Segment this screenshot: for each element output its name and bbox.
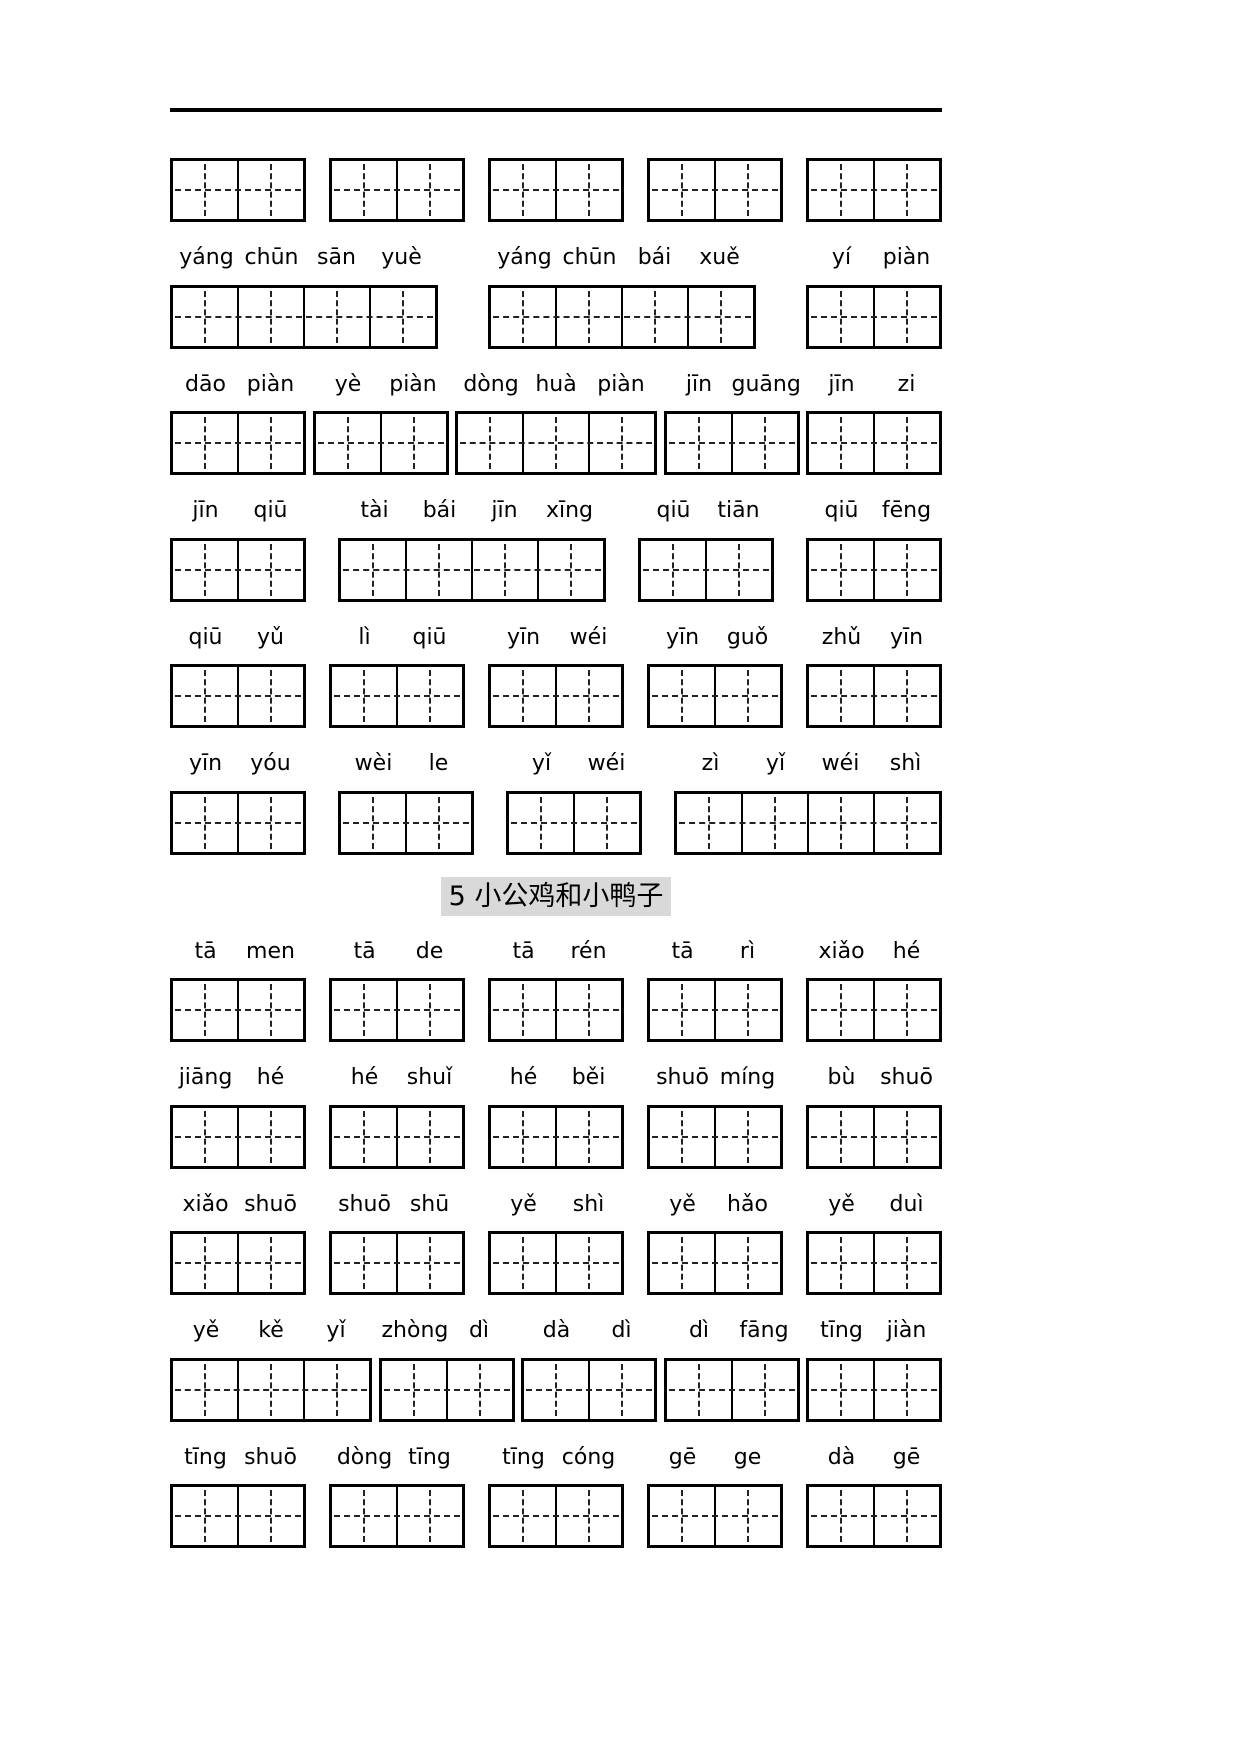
pinyin-syllable: yīn bbox=[650, 624, 715, 652]
grid-cell bbox=[809, 414, 873, 472]
pinyin-syllable: jīn bbox=[809, 371, 874, 399]
pinyin-syllable: xuě bbox=[687, 244, 752, 272]
grid-cell bbox=[809, 981, 873, 1039]
word-unit: shuōshū bbox=[329, 1191, 465, 1296]
pinyin-syllable: tīng bbox=[397, 1444, 462, 1472]
grid-cell bbox=[873, 794, 939, 852]
grid-group bbox=[170, 1231, 306, 1295]
word-unit: gēge bbox=[647, 1444, 783, 1549]
grid-cell bbox=[173, 414, 237, 472]
pinyin-syllable: zhòng bbox=[382, 1317, 447, 1345]
word-unit: dòngtīng bbox=[329, 1444, 465, 1549]
pinyin-syllable: jiàn bbox=[874, 1317, 939, 1345]
word-unit: zhǔyīn bbox=[806, 624, 942, 729]
grid-cell bbox=[555, 667, 621, 725]
pinyin-word: tāde bbox=[332, 938, 462, 966]
grid-cell bbox=[809, 161, 873, 219]
grid-cell bbox=[809, 667, 873, 725]
pinyin-syllable: tīng bbox=[491, 1444, 556, 1472]
sections-before-title: yángchūnsānyuèyángchūnbáixuěyípiàndāopià… bbox=[170, 244, 942, 855]
pinyin-syllable: zì bbox=[678, 750, 743, 778]
grid-cell bbox=[173, 161, 237, 219]
pinyin-syllable: shuō bbox=[238, 1444, 303, 1472]
grid-cell bbox=[873, 541, 939, 599]
pinyin-syllable: wéi bbox=[556, 624, 621, 652]
grid-group bbox=[488, 1105, 624, 1169]
pinyin-syllable: cóng bbox=[556, 1444, 621, 1472]
pinyin-syllable: shuō bbox=[238, 1191, 303, 1219]
grid-cell bbox=[873, 288, 939, 346]
grid-cell bbox=[446, 1361, 512, 1419]
pinyin-word: jīnzi bbox=[809, 371, 939, 399]
grid-group bbox=[329, 1231, 465, 1295]
grid-cell bbox=[173, 981, 237, 1039]
grid-cell bbox=[522, 414, 588, 472]
pinyin-syllable: jīn bbox=[667, 371, 732, 399]
pinyin-syllable: rì bbox=[715, 938, 780, 966]
pinyin-syllable: hǎo bbox=[715, 1191, 780, 1219]
grid-cell bbox=[341, 794, 405, 852]
word-unit: yángchūnsānyuè bbox=[170, 244, 438, 349]
word-unit: tārén bbox=[488, 938, 624, 1043]
pinyin-syllable: tā bbox=[332, 938, 397, 966]
pinyin-syllable: dì bbox=[447, 1317, 512, 1345]
word-unit: yīnwéi bbox=[488, 624, 624, 729]
pinyin-word: bùshuō bbox=[809, 1064, 939, 1092]
grid-cell bbox=[237, 414, 303, 472]
pinyin-word: qiūyǔ bbox=[173, 624, 303, 652]
grid-group bbox=[488, 158, 624, 222]
grid-cell bbox=[731, 414, 797, 472]
pinyin-syllable: qiū bbox=[641, 497, 706, 525]
pinyin-syllable: piàn bbox=[381, 371, 446, 399]
grid-group bbox=[806, 158, 942, 222]
word-unit: wèile bbox=[338, 750, 474, 855]
grid-group bbox=[338, 791, 474, 855]
word-unit: dònghuàpiàn bbox=[455, 371, 657, 476]
word-unit: yěshì bbox=[488, 1191, 624, 1296]
grid-group bbox=[647, 1231, 783, 1295]
grid-cell bbox=[173, 1361, 237, 1419]
pinyin-syllable: tīng bbox=[809, 1317, 874, 1345]
grid-cell bbox=[369, 288, 435, 346]
grid-cell bbox=[873, 667, 939, 725]
pinyin-word: lìqiū bbox=[332, 624, 462, 652]
grid-cell bbox=[809, 1361, 873, 1419]
grid-cell bbox=[731, 1361, 797, 1419]
word-unit: yīnguǒ bbox=[647, 624, 783, 729]
word-unit: shuōmíng bbox=[647, 1064, 783, 1169]
grid-cell bbox=[237, 981, 303, 1039]
grid-group bbox=[488, 285, 756, 349]
grid-cell bbox=[807, 794, 873, 852]
worksheet-content: yángchūnsānyuèyángchūnbáixuěyípiàndāopià… bbox=[170, 0, 942, 1548]
pinyin-syllable: piàn bbox=[589, 371, 654, 399]
grid-group bbox=[313, 411, 449, 475]
grid-group bbox=[647, 158, 783, 222]
pinyin-word: dàgē bbox=[809, 1444, 939, 1472]
pinyin-syllable: tài bbox=[342, 497, 407, 525]
word-unit: dàdì bbox=[521, 1317, 657, 1422]
grid-cell bbox=[237, 667, 303, 725]
pinyin-word: xiǎohé bbox=[809, 938, 939, 966]
grid-cell bbox=[641, 541, 705, 599]
grid-cell bbox=[491, 1234, 555, 1292]
word-unit: dìfāng bbox=[664, 1317, 800, 1422]
grid-group bbox=[638, 538, 774, 602]
pinyin-syllable: xiǎo bbox=[173, 1191, 238, 1219]
grid-cell bbox=[873, 1108, 939, 1166]
grid-cell bbox=[621, 288, 687, 346]
pinyin-syllable: hé bbox=[238, 1064, 303, 1092]
grid-group bbox=[488, 1231, 624, 1295]
pinyin-word: zìyǐwéishì bbox=[678, 750, 938, 778]
grid-cell bbox=[555, 981, 621, 1039]
grid-cell bbox=[173, 1234, 237, 1292]
pinyin-syllable: tīng bbox=[173, 1444, 238, 1472]
pinyin-word: yěduì bbox=[809, 1191, 939, 1219]
pinyin-syllable: dòng bbox=[459, 371, 524, 399]
word-unit: jīnguāng bbox=[664, 371, 800, 476]
worksheet-section: qiūyǔlìqiūyīnwéiyīnguǒzhǔyīn bbox=[170, 624, 942, 729]
grid-cell bbox=[491, 667, 555, 725]
worksheet-section: tīngshuōdòngtīngtīngcónggēgedàgē bbox=[170, 1444, 942, 1549]
pinyin-word: tārì bbox=[650, 938, 780, 966]
word-unit: yěkěyǐ bbox=[170, 1317, 372, 1422]
pinyin-syllable: yě bbox=[491, 1191, 556, 1219]
grid-group bbox=[664, 1358, 800, 1422]
grid-group bbox=[647, 664, 783, 728]
pinyin-syllable: bái bbox=[407, 497, 472, 525]
grid-cell bbox=[332, 667, 396, 725]
worksheet-section: yīnyóuwèileyǐwéizìyǐwéishì bbox=[170, 750, 942, 855]
pinyin-syllable: yǐ bbox=[509, 750, 574, 778]
grid-group bbox=[170, 1105, 306, 1169]
grid-group bbox=[806, 978, 942, 1042]
pinyin-syllable: dà bbox=[809, 1444, 874, 1472]
pinyin-word: tāmen bbox=[173, 938, 303, 966]
pinyin-syllable: yě bbox=[174, 1317, 239, 1345]
grid-cell bbox=[714, 161, 780, 219]
pinyin-syllable: dòng bbox=[332, 1444, 397, 1472]
grid-group bbox=[170, 1484, 306, 1548]
grid-cell bbox=[650, 981, 714, 1039]
pinyin-word: yīnguǒ bbox=[650, 624, 780, 652]
grid-group bbox=[329, 978, 465, 1042]
grid-group bbox=[488, 978, 624, 1042]
pinyin-syllable: qiū bbox=[397, 624, 462, 652]
grid-cell bbox=[714, 1108, 780, 1166]
word-unit: yípiàn bbox=[806, 244, 942, 349]
pinyin-word: qiūfēng bbox=[809, 497, 939, 525]
grid-cell bbox=[491, 1108, 555, 1166]
pinyin-word: tàibáijīnxīng bbox=[342, 497, 602, 525]
grid-cell bbox=[650, 1234, 714, 1292]
grid-cell bbox=[537, 541, 603, 599]
pinyin-syllable: qiū bbox=[173, 624, 238, 652]
pinyin-syllable: fēng bbox=[874, 497, 939, 525]
grid-cell bbox=[650, 667, 714, 725]
grid-cell bbox=[573, 794, 639, 852]
grid-cell bbox=[650, 1487, 714, 1545]
pinyin-word: dìfāng bbox=[667, 1317, 797, 1345]
grid-cell bbox=[705, 541, 771, 599]
grid-cell bbox=[873, 1361, 939, 1419]
pinyin-syllable: shuō bbox=[874, 1064, 939, 1092]
grid-cell bbox=[471, 541, 537, 599]
grid-cell bbox=[809, 1108, 873, 1166]
grid-cell bbox=[237, 1108, 303, 1166]
pinyin-syllable: wèi bbox=[341, 750, 406, 778]
pinyin-syllable: yè bbox=[316, 371, 381, 399]
word-unit: tāmen bbox=[170, 938, 306, 1043]
grid-cell bbox=[303, 288, 369, 346]
grid-cell bbox=[396, 1108, 462, 1166]
grid-group bbox=[806, 1358, 942, 1422]
grid-cell bbox=[491, 161, 555, 219]
pinyin-word: héběi bbox=[491, 1064, 621, 1092]
grid-cell bbox=[714, 1487, 780, 1545]
grid-cell bbox=[237, 794, 303, 852]
pinyin-word: yīnwéi bbox=[491, 624, 621, 652]
word-unit: dāopiàn bbox=[170, 371, 306, 476]
grid-group bbox=[329, 1105, 465, 1169]
word-unit: yěhǎo bbox=[647, 1191, 783, 1296]
grid-group bbox=[170, 978, 306, 1042]
pinyin-word: tīngshuō bbox=[173, 1444, 303, 1472]
word-unit: bùshuō bbox=[806, 1064, 942, 1169]
pinyin-syllable: dì bbox=[589, 1317, 654, 1345]
grid-cell bbox=[555, 1234, 621, 1292]
word-unit: jīnzi bbox=[806, 371, 942, 476]
pinyin-syllable: hé bbox=[874, 938, 939, 966]
pinyin-syllable: duì bbox=[874, 1191, 939, 1219]
pinyin-syllable: míng bbox=[715, 1064, 780, 1092]
word-unit: dàgē bbox=[806, 1444, 942, 1549]
grid-group bbox=[488, 664, 624, 728]
worksheet-section: dāopiànyèpiàndònghuàpiànjīnguāngjīnzi bbox=[170, 371, 942, 476]
word-unit: héshuǐ bbox=[329, 1064, 465, 1169]
word-unit: yīnyóu bbox=[170, 750, 306, 855]
grid-cell bbox=[173, 1108, 237, 1166]
grid-cell bbox=[741, 794, 807, 852]
grid-cell bbox=[405, 541, 471, 599]
pinyin-word: qiūtiān bbox=[641, 497, 771, 525]
grid-group bbox=[647, 1105, 783, 1169]
pinyin-syllable: qiū bbox=[809, 497, 874, 525]
grid-cell bbox=[332, 161, 396, 219]
word-unit: tāde bbox=[329, 938, 465, 1043]
grid-cell bbox=[555, 161, 621, 219]
grid-cell bbox=[714, 667, 780, 725]
pinyin-syllable: tā bbox=[173, 938, 238, 966]
word-unit: tīngshuō bbox=[170, 1444, 306, 1549]
pinyin-word: xiǎoshuō bbox=[173, 1191, 303, 1219]
grid-cell bbox=[873, 414, 939, 472]
word-unit: zìyǐwéishì bbox=[674, 750, 942, 855]
grid-cell bbox=[667, 414, 731, 472]
grid-group bbox=[647, 978, 783, 1042]
pinyin-syllable: kě bbox=[239, 1317, 304, 1345]
grid-group bbox=[170, 791, 306, 855]
word-unit: qiūtiān bbox=[638, 497, 774, 602]
grid-cell bbox=[341, 541, 405, 599]
pinyin-syllable: yǔ bbox=[238, 624, 303, 652]
word-unit: jiānghé bbox=[170, 1064, 306, 1169]
pinyin-syllable: zhǔ bbox=[809, 624, 874, 652]
lesson-title-row: 5 小公鸡和小鸭子 bbox=[170, 877, 942, 916]
grid-cell bbox=[491, 288, 555, 346]
pinyin-syllable: shì bbox=[556, 1191, 621, 1219]
pinyin-syllable: běi bbox=[556, 1064, 621, 1092]
worksheet-section: xiǎoshuōshuōshūyěshìyěhǎoyěduì bbox=[170, 1191, 942, 1296]
pinyin-syllable: chūn bbox=[557, 244, 622, 272]
grid-cell bbox=[687, 288, 753, 346]
pinyin-syllable: yǐ bbox=[743, 750, 808, 778]
grid-group bbox=[806, 1105, 942, 1169]
grid-cell bbox=[332, 1487, 396, 1545]
word-unit: tārì bbox=[647, 938, 783, 1043]
pinyin-syllable: yě bbox=[809, 1191, 874, 1219]
grid-cell bbox=[458, 414, 522, 472]
worksheet-section: yángchūnsānyuèyángchūnbáixuěyípiàn bbox=[170, 244, 942, 349]
grid-group bbox=[329, 158, 465, 222]
worksheet-section: jīnqiūtàibáijīnxīngqiūtiānqiūfēng bbox=[170, 497, 942, 602]
pinyin-word: wèile bbox=[341, 750, 471, 778]
pinyin-syllable: guǒ bbox=[715, 624, 780, 652]
pinyin-word: jīnguāng bbox=[667, 371, 797, 399]
grid-cell bbox=[173, 667, 237, 725]
pinyin-syllable: huà bbox=[524, 371, 589, 399]
grid-cell bbox=[173, 794, 237, 852]
pinyin-syllable: yīn bbox=[491, 624, 556, 652]
pinyin-syllable: rén bbox=[556, 938, 621, 966]
word-unit: qiūyǔ bbox=[170, 624, 306, 729]
grid-cell bbox=[873, 981, 939, 1039]
pinyin-syllable: le bbox=[406, 750, 471, 778]
grid-cell bbox=[555, 1487, 621, 1545]
grid-cell bbox=[677, 794, 741, 852]
word-unit: héběi bbox=[488, 1064, 624, 1169]
grid-group bbox=[170, 158, 306, 222]
worksheet-section: yěkěyǐzhòngdìdàdìdìfāngtīngjiàn bbox=[170, 1317, 942, 1422]
top-rule-divider bbox=[170, 108, 942, 112]
grid-cell bbox=[237, 541, 303, 599]
grid-cell bbox=[555, 288, 621, 346]
grid-group bbox=[338, 538, 606, 602]
pinyin-syllable: gē bbox=[650, 1444, 715, 1472]
pinyin-syllable: dāo bbox=[173, 371, 238, 399]
grid-group bbox=[674, 791, 942, 855]
pinyin-word: yěshì bbox=[491, 1191, 621, 1219]
grid-group bbox=[379, 1358, 515, 1422]
grid-cell bbox=[316, 414, 380, 472]
pinyin-word: héshuǐ bbox=[332, 1064, 462, 1092]
word-unit: tàibáijīnxīng bbox=[338, 497, 606, 602]
pinyin-word: yěkěyǐ bbox=[174, 1317, 369, 1345]
grid-group bbox=[806, 538, 942, 602]
pinyin-word: yèpiàn bbox=[316, 371, 446, 399]
pinyin-syllable: shuǐ bbox=[397, 1064, 462, 1092]
pinyin-syllable: wéi bbox=[574, 750, 639, 778]
grid-cell bbox=[173, 1487, 237, 1545]
pinyin-syllable: yóu bbox=[238, 750, 303, 778]
grid-cell bbox=[650, 161, 714, 219]
pinyin-word: zhòngdì bbox=[382, 1317, 512, 1345]
pinyin-syllable: hé bbox=[491, 1064, 556, 1092]
pinyin-word: yípiàn bbox=[809, 244, 939, 272]
worksheet-section: jiānghéhéshuǐhéběishuōmíngbùshuō bbox=[170, 1064, 942, 1169]
grid-group bbox=[647, 1484, 783, 1548]
grid-cell bbox=[873, 161, 939, 219]
pinyin-syllable: lì bbox=[332, 624, 397, 652]
sections-after-title: tāmentādetāréntārìxiǎohéjiānghéhéshuǐhéb… bbox=[170, 938, 942, 1549]
pinyin-syllable: shuō bbox=[332, 1191, 397, 1219]
grid-cell bbox=[332, 981, 396, 1039]
grid-cell bbox=[396, 161, 462, 219]
word-unit: zhòngdì bbox=[379, 1317, 515, 1422]
pinyin-syllable: shì bbox=[873, 750, 938, 778]
pinyin-syllable: guāng bbox=[732, 371, 797, 399]
grid-cell bbox=[588, 414, 654, 472]
grid-cell bbox=[396, 1234, 462, 1292]
word-unit: xiǎoshuō bbox=[170, 1191, 306, 1296]
orphan-grid-row bbox=[170, 158, 942, 222]
grid-group bbox=[806, 285, 942, 349]
pinyin-syllable: men bbox=[238, 938, 303, 966]
grid-cell bbox=[509, 794, 573, 852]
pinyin-syllable: wéi bbox=[808, 750, 873, 778]
worksheet-page: yángchūnsānyuèyángchūnbáixuěyípiàndāopià… bbox=[0, 0, 1240, 1754]
grid-cell bbox=[237, 161, 303, 219]
grid-cell bbox=[588, 1361, 654, 1419]
pinyin-syllable: jīn bbox=[472, 497, 537, 525]
pinyin-syllable: piàn bbox=[874, 244, 939, 272]
grid-cell bbox=[650, 1108, 714, 1166]
pinyin-syllable: sān bbox=[304, 244, 369, 272]
grid-group bbox=[170, 285, 438, 349]
pinyin-word: shuōshū bbox=[332, 1191, 462, 1219]
pinyin-syllable: tiān bbox=[706, 497, 771, 525]
pinyin-word: gēge bbox=[650, 1444, 780, 1472]
pinyin-syllable: yīn bbox=[173, 750, 238, 778]
grid-group bbox=[170, 538, 306, 602]
grid-group bbox=[329, 664, 465, 728]
grid-cell bbox=[396, 981, 462, 1039]
pinyin-word: dònghuàpiàn bbox=[459, 371, 654, 399]
pinyin-syllable: jiāng bbox=[173, 1064, 238, 1092]
grid-cell bbox=[237, 1487, 303, 1545]
grid-cell bbox=[303, 1361, 369, 1419]
pinyin-syllable: dì bbox=[667, 1317, 732, 1345]
lesson-title: 5 小公鸡和小鸭子 bbox=[441, 877, 672, 916]
grid-cell bbox=[809, 1487, 873, 1545]
pinyin-syllable: ge bbox=[715, 1444, 780, 1472]
pinyin-syllable: xiǎo bbox=[809, 938, 874, 966]
pinyin-syllable: shū bbox=[397, 1191, 462, 1219]
grid-group bbox=[455, 411, 657, 475]
pinyin-syllable: yě bbox=[650, 1191, 715, 1219]
word-unit: qiūfēng bbox=[806, 497, 942, 602]
grid-cell bbox=[714, 1234, 780, 1292]
grid-group bbox=[170, 411, 306, 475]
pinyin-word: tīngjiàn bbox=[809, 1317, 939, 1345]
pinyin-word: yīnyóu bbox=[173, 750, 303, 778]
pinyin-syllable: shuō bbox=[650, 1064, 715, 1092]
pinyin-syllable: tā bbox=[650, 938, 715, 966]
worksheet-section: tāmentādetāréntārìxiǎohé bbox=[170, 938, 942, 1043]
grid-cell bbox=[237, 1234, 303, 1292]
